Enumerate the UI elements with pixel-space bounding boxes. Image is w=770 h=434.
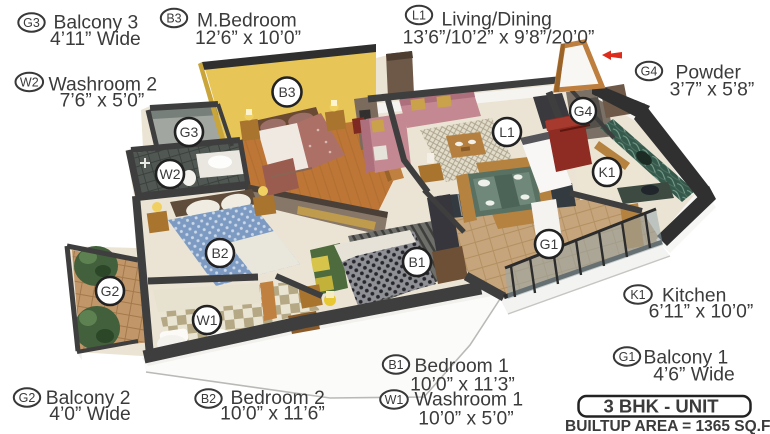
svg-text:K1: K1 — [630, 288, 645, 302]
svg-text:L1: L1 — [412, 8, 426, 22]
svg-text:4’11” Wide: 4’11” Wide — [50, 29, 141, 50]
svg-text:B3: B3 — [278, 84, 295, 100]
svg-text:G4: G4 — [574, 103, 593, 119]
svg-text:G3: G3 — [180, 124, 199, 140]
svg-text:B2: B2 — [201, 392, 216, 406]
svg-text:G1: G1 — [540, 236, 559, 252]
svg-text:W1: W1 — [197, 312, 218, 328]
svg-text:L1: L1 — [499, 124, 515, 140]
svg-text:W1: W1 — [385, 393, 404, 407]
svg-text:13’6”/10’2” x 9’8”/20’0”: 13’6”/10’2” x 9’8”/20’0” — [403, 28, 595, 49]
svg-text:BUILTUP AREA = 1365 SQ.FT.: BUILTUP AREA = 1365 SQ.FT. — [565, 418, 770, 434]
svg-text:W2: W2 — [160, 166, 181, 182]
svg-text:G3: G3 — [23, 16, 40, 30]
svg-text:G2: G2 — [101, 283, 120, 299]
svg-text:W2: W2 — [20, 75, 39, 89]
svg-text:12’6” x 10’0”: 12’6” x 10’0” — [195, 28, 301, 49]
svg-text:B3: B3 — [166, 11, 181, 25]
svg-text:3’7” x 5’8”: 3’7” x 5’8” — [670, 80, 755, 101]
svg-text:B2: B2 — [211, 245, 228, 261]
svg-text:B1: B1 — [388, 358, 403, 372]
svg-text:Washroom 1: Washroom 1 — [415, 390, 524, 411]
svg-text:7’6” x 5’0”: 7’6” x 5’0” — [60, 91, 145, 112]
svg-text:G4: G4 — [641, 64, 658, 78]
svg-text:3 BHK - UNIT: 3 BHK - UNIT — [603, 395, 719, 416]
svg-text:K1: K1 — [598, 164, 615, 180]
svg-text:6’11” x 10’0”: 6’11” x 10’0” — [649, 302, 754, 323]
svg-text:4’0” Wide: 4’0” Wide — [49, 404, 130, 425]
svg-text:10’0” x 11’6”: 10’0” x 11’6” — [220, 404, 325, 425]
svg-text:B1: B1 — [408, 254, 425, 270]
svg-text:G1: G1 — [619, 350, 636, 364]
svg-text:G2: G2 — [19, 391, 36, 405]
svg-text:4’6” Wide: 4’6” Wide — [653, 365, 734, 386]
svg-text:10’0” x 5’0”: 10’0” x 5’0” — [418, 409, 513, 430]
